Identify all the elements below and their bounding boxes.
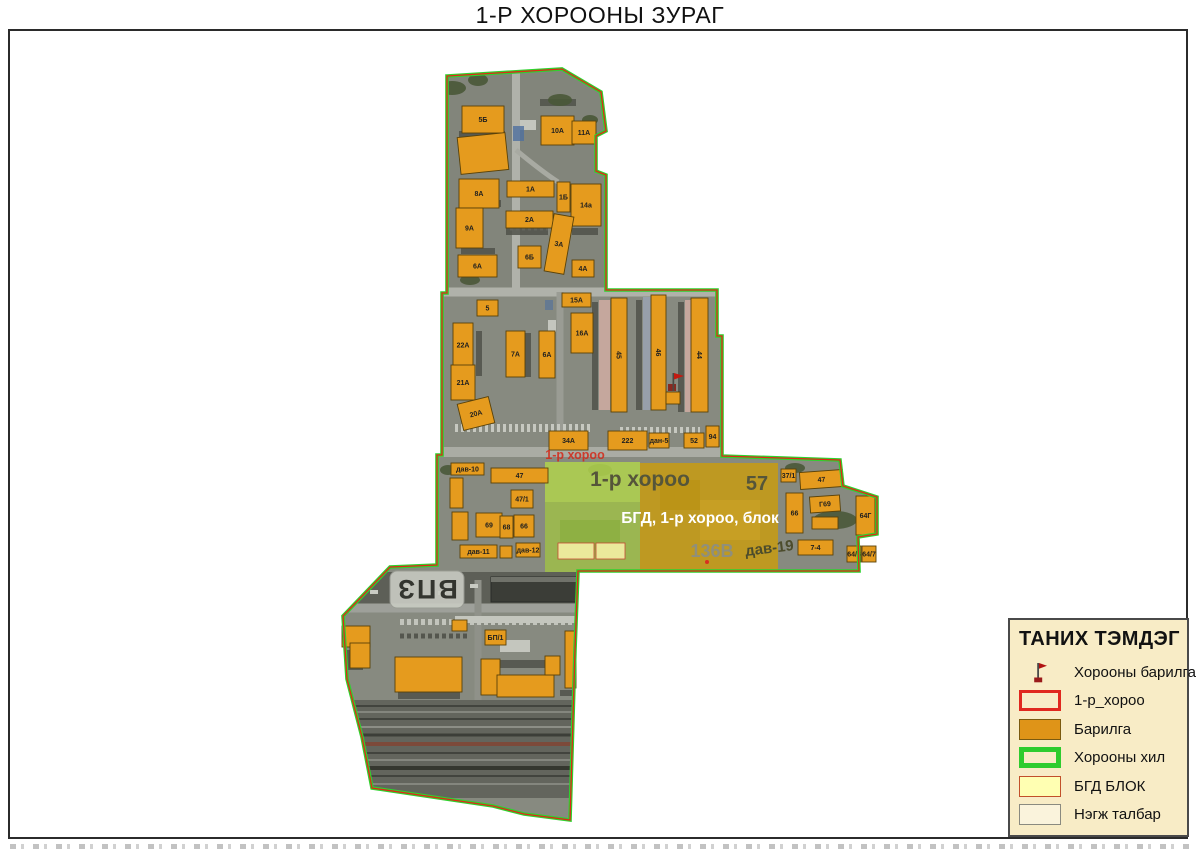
legend-swatch-khoroo-1 [1019,690,1061,711]
building-дан-5: дан-5 [649,433,669,448]
building-label: 15А [570,297,583,304]
building-47/1: 47/1 [511,490,533,508]
legend-item-unit-parcel: Нэгж талбар [1017,801,1180,830]
building-11А: 11А [572,121,596,144]
building-68: 68 [500,516,513,538]
legend-swatch-unit-parcel [1019,804,1061,825]
building-94: 94 [706,426,719,447]
building-label: 21А [457,380,470,387]
building-6А: 6А [458,255,497,277]
building-label: 6А [543,352,552,359]
building-1Б: 1Б [557,182,570,212]
building-37/1: 37/1 [781,469,796,482]
building-label: 7А [511,351,520,358]
building-label: 1А [526,186,535,193]
building-label: 14а [580,202,592,209]
legend-item-khoroo-1: 1-р_хороо [1017,687,1180,716]
building-label: дав-12 [517,547,540,554]
building-69: 69 [476,513,502,537]
building-label: 69 [485,522,493,529]
building-label: 11А [578,130,590,137]
legend-label-khoroo-border: Хорооны хил [1074,749,1165,766]
building-21А: 21А [451,365,475,400]
building-label: 22А [457,342,470,349]
building-label: 5 [486,305,490,312]
legend-item-barilga: Барилга [1017,715,1180,744]
cutoff-text-strip [10,844,1190,849]
building-46: 46 [651,295,666,410]
building-66: 66 [514,515,534,537]
legend-swatch-bgd-block [1019,776,1061,797]
building-1А: 1А [507,181,554,197]
legend-swatch-khoroo-border [1019,747,1061,768]
building-label: 10А [551,128,564,135]
building-66: 66 [786,493,803,533]
building-label: 94 [709,434,717,441]
flag-icon [1031,661,1049,684]
building [395,657,462,692]
legend-swatch-barilga [1019,719,1061,740]
building [545,656,560,675]
building-52: 52 [684,433,704,448]
building-14а: 14а [571,184,601,226]
building-7-4: 7-4 [798,540,833,555]
legend-item-khoroo-building: Хорооны барилга [1017,658,1180,687]
building-label: дан-5 [650,438,669,445]
building-label: 66 [791,510,799,517]
building-10А: 10А [541,116,574,145]
block-caption: БГД, 1-р хороо, блок [621,510,779,527]
building-label: 45 [615,351,622,359]
building [350,643,370,668]
building-9А: 9А [456,208,483,248]
overlay-khoroo-label: 1-р хороо [590,468,690,491]
building-label: 8А [475,191,484,198]
building [450,478,463,508]
khoroo-building-flag-icon [1019,660,1061,684]
building-label: 5Б [479,117,488,124]
legend-title: ТАНИХ ТЭМДЭГ [1019,628,1180,651]
satellite-imagery: ВПЗ [330,60,890,845]
building-label: БП/1 [488,635,504,642]
building-label: 16А [576,330,589,337]
building [500,546,512,558]
building-label: 6Б [525,254,534,261]
page: 1-Р ХОРООНЫ ЗУРАГ [0,0,1200,850]
legend-items: Хорооны барилга1-р_хорооБарилгаХорооны х… [1017,658,1180,829]
building-6А: 6А [539,331,555,378]
building-label: 66 [520,523,528,530]
building-label: 4А [579,266,588,273]
legend-item-bgd-block: БГД БЛОК [1017,772,1180,801]
building [452,512,468,540]
building-label: 46 [654,349,661,357]
building [666,392,680,404]
khoroo-red-label: 1-р хороо [545,448,605,462]
building-16А: 16А [571,313,593,353]
building-22А: 22А [453,323,473,367]
building-label: 44 [695,351,702,359]
building-label: 37/1 [782,473,796,480]
red-marker-dot [705,560,709,564]
building-label: дав-11 [467,549,489,556]
parcel-57-label: 57 [746,473,768,495]
building-64/7: 64/7 [862,546,876,562]
building-label: 222 [622,438,634,445]
building-label: 68 [503,524,511,531]
legend-label-khoroo-building: Хорооны барилга [1074,664,1196,681]
building [457,133,509,175]
parcel-136-label: 136В [690,541,733,561]
building-БП/1: БП/1 [485,630,506,645]
legend-item-khoroo-border: Хорооны хил [1017,744,1180,773]
building-label: дав-10 [456,466,479,473]
building-label: 52 [690,438,698,445]
building-label: 9А [465,225,474,232]
building-6Б: 6Б [518,246,541,268]
legend-label-bgd-block: БГД БЛОК [1074,778,1145,795]
building [497,675,554,697]
building-5Б: 5Б [462,106,504,133]
legend-label-barilga: Барилга [1074,721,1131,738]
building-дав-11: дав-11 [460,545,497,558]
building [812,517,838,529]
building-5: 5 [477,300,498,316]
building-47: 47 [799,470,843,490]
building-Г69: Г69 [809,495,840,513]
building-47: 47 [491,468,548,483]
building-label: 34А [562,438,575,445]
building-222: 222 [608,431,647,450]
building-64Г: 64Г [856,496,875,535]
building-дав-10: дав-10 [451,463,484,475]
building-label: 47/1 [515,496,529,503]
rooftop-sign-text: ВПЗ [396,574,458,604]
legend-label-unit-parcel: Нэгж талбар [1074,806,1161,823]
building-label: 47 [817,477,825,485]
building [452,620,467,631]
building-7А: 7А [506,331,525,377]
building-label: 7-4 [810,545,820,552]
building-label: 64Г [860,513,872,520]
building-2А: 2А [506,211,553,228]
building-дав-12: дав-12 [516,543,540,557]
building-label: 64/7 [862,551,876,558]
building-15А: 15А [562,293,591,307]
bgd-block-parcels [558,543,625,559]
building-label: 47 [516,473,524,480]
building-label: 2А [525,217,534,224]
legend-label-khoroo-1: 1-р_хороо [1074,692,1145,709]
building-label: 1Б [559,194,568,201]
building-45: 45 [611,298,627,412]
building-44: 44 [691,298,708,412]
building-8А: 8А [459,179,499,208]
legend-box: ТАНИХ ТЭМДЭГ Хорооны барилга1-р_хорооБар… [1008,618,1189,837]
building-label: Г69 [819,501,831,509]
building-4А: 4А [572,260,594,277]
building-label: 6А [473,263,482,270]
